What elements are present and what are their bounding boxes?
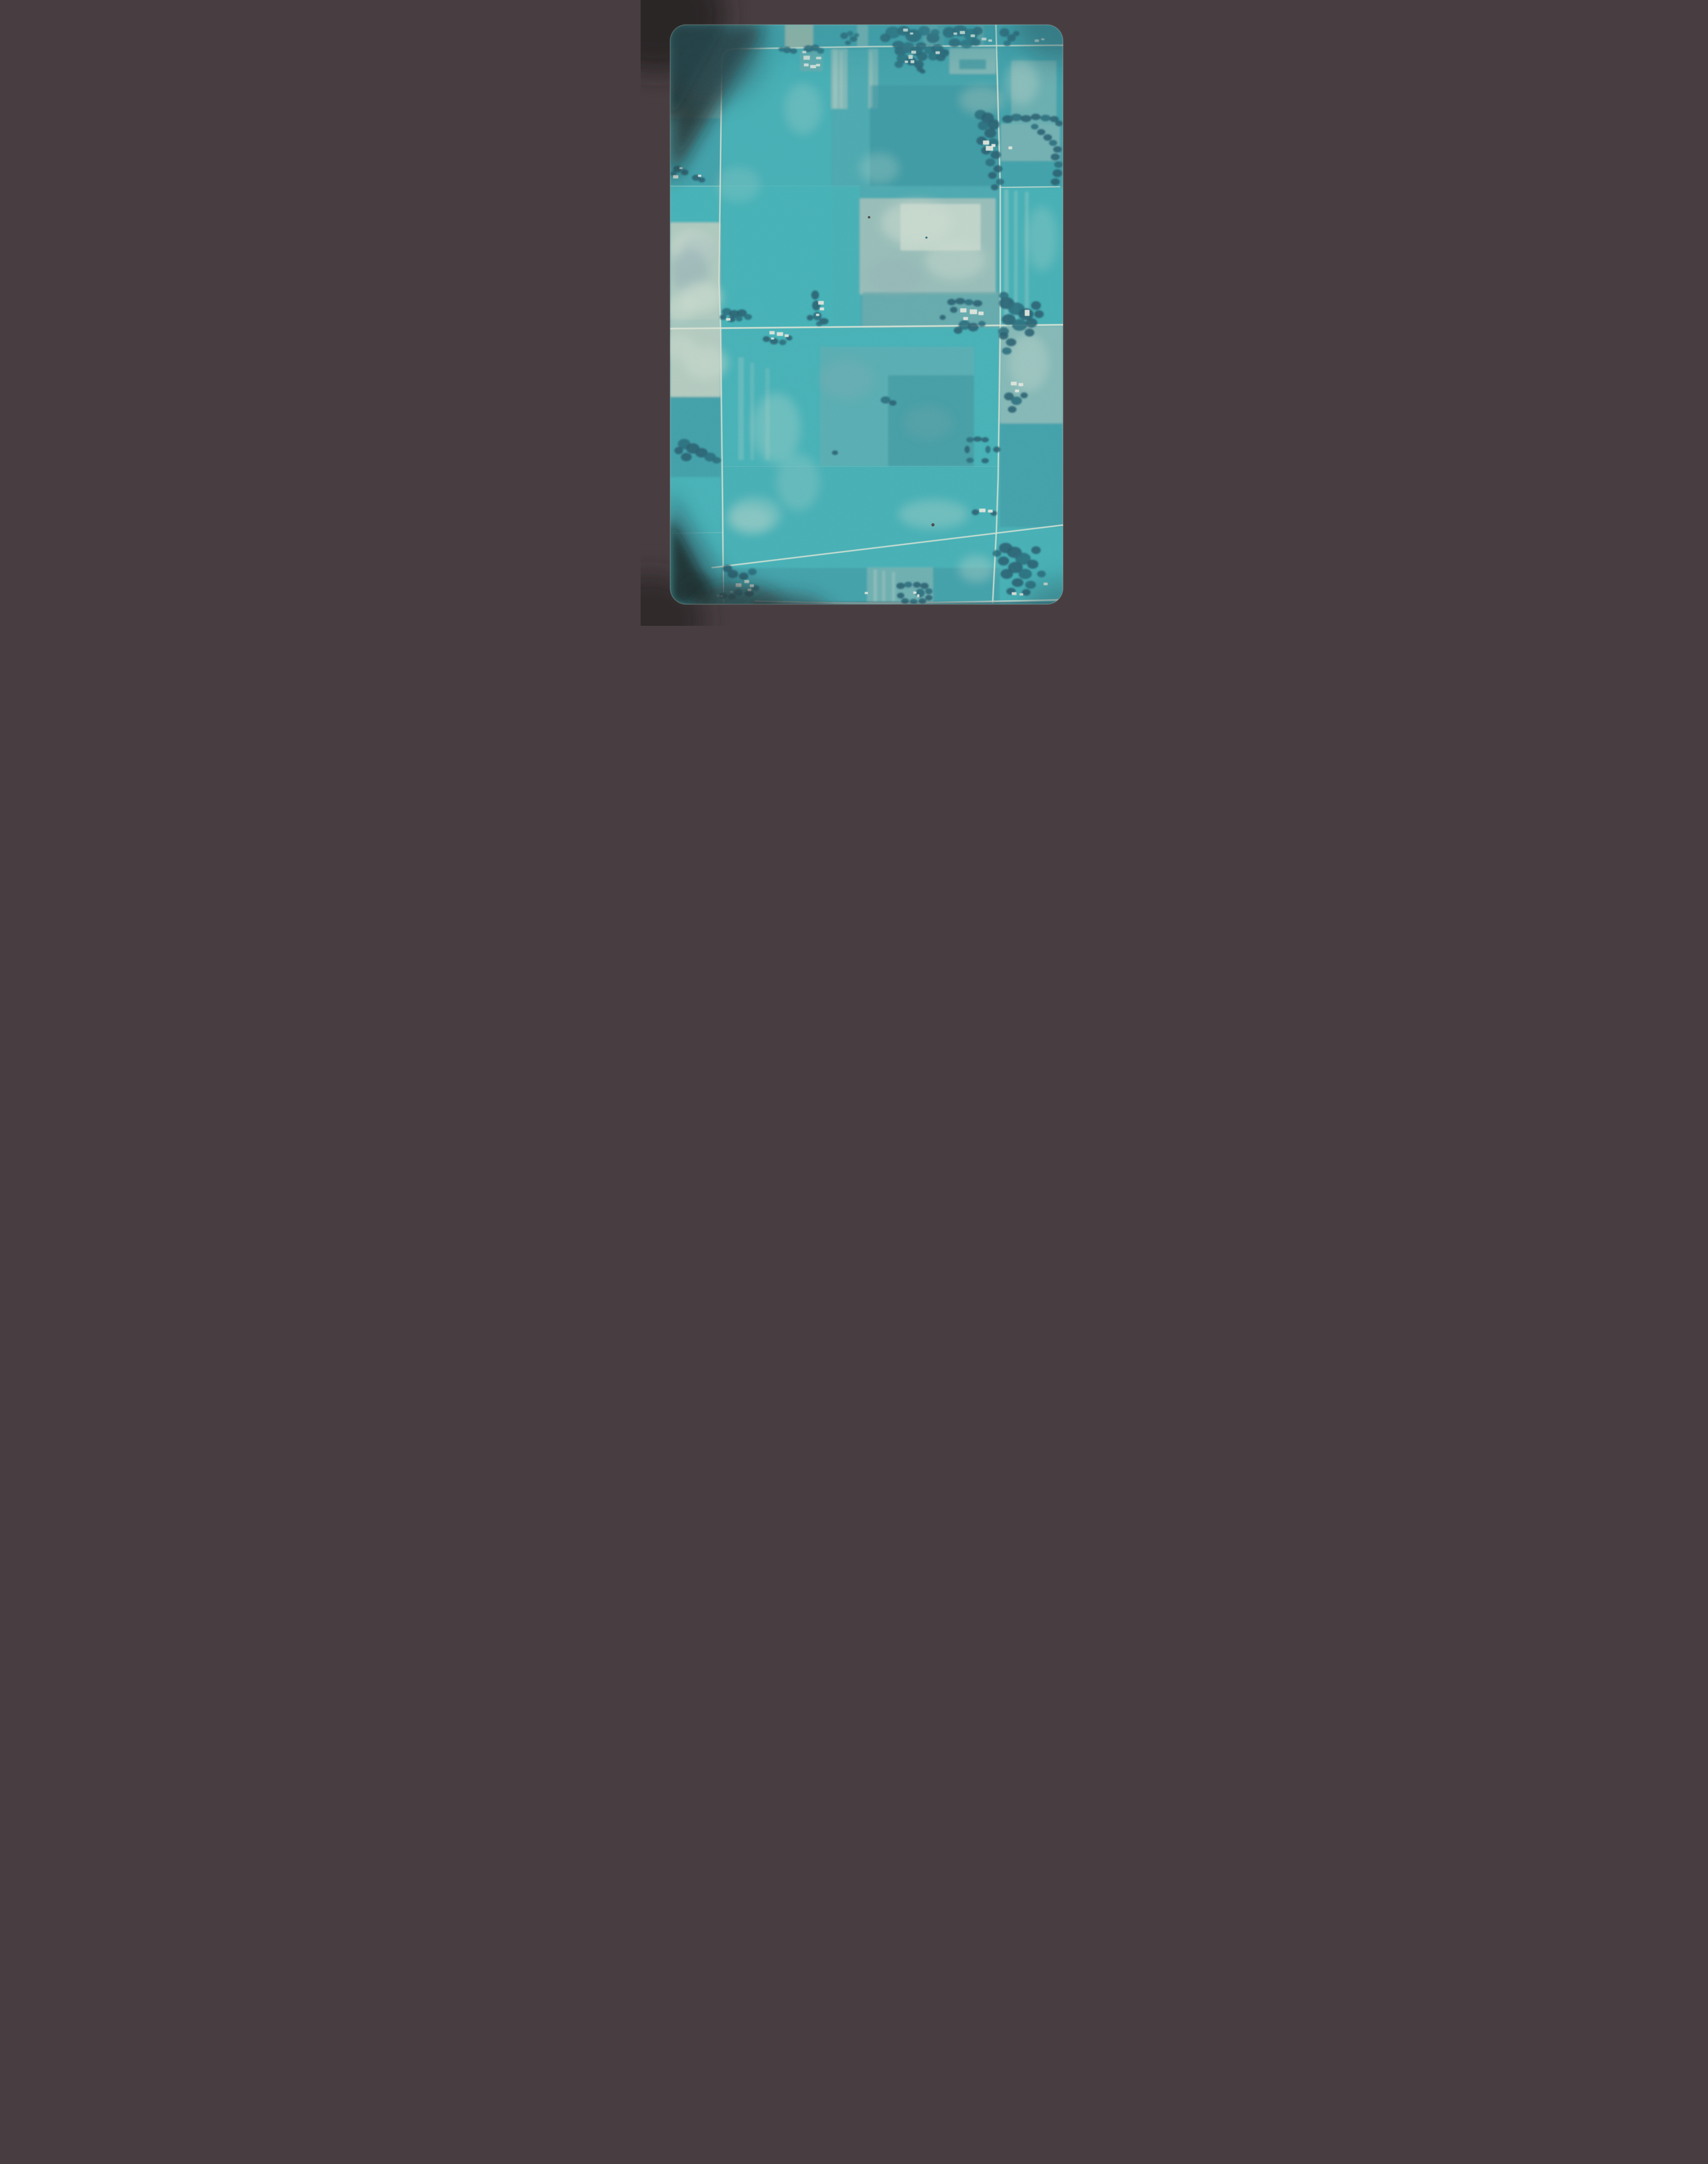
- film-slide-scan: [641, 0, 1068, 626]
- film-grain-dark: [670, 25, 1063, 604]
- aerial-photograph: [646, 0, 1067, 626]
- aerial-photo-slide: [641, 0, 1068, 626]
